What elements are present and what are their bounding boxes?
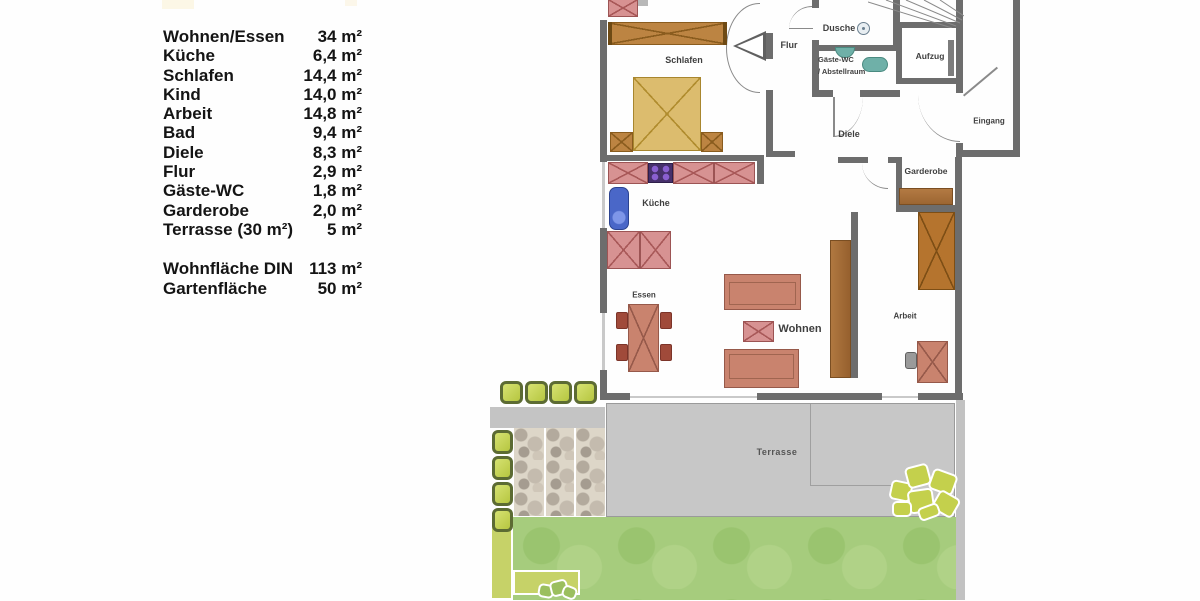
legend-row: Wohnen/Essen34 m² <box>163 27 362 46</box>
wall <box>851 212 858 378</box>
wall <box>766 151 795 157</box>
office-chair <box>905 352 917 369</box>
shower-icon <box>857 22 870 35</box>
legend-value: 50 m² <box>318 279 362 298</box>
legend-label: Bad <box>163 123 195 142</box>
wall <box>757 155 764 184</box>
legend-row: Bad9,4 m² <box>163 123 362 142</box>
kitchen-counter <box>608 162 648 184</box>
wardrobe-schlafen <box>608 22 727 45</box>
floorplan-page: { "legend": { "rows": [ {"label":"Wohnen… <box>0 0 1200 600</box>
toilet <box>862 57 888 72</box>
sofa <box>724 274 801 310</box>
terrace-edge-band <box>490 407 605 428</box>
dining-chair <box>616 312 628 329</box>
room-label-eingang: Eingang <box>973 117 1005 126</box>
nightstand <box>610 132 633 152</box>
dining-table <box>628 304 659 372</box>
wall <box>1013 0 1020 157</box>
cutoff-furniture <box>608 0 638 17</box>
legend-row: Flur2,9 m² <box>163 162 362 181</box>
legend-row: Kind14,0 m² <box>163 85 362 104</box>
legend-value: 14,8 m² <box>303 104 362 123</box>
door-leaf-schlafen-inner <box>737 35 763 57</box>
pebble-paving <box>546 428 574 516</box>
tall-wardrobe <box>918 212 955 290</box>
planter-box <box>549 381 572 404</box>
legend-value: 9,4 m² <box>313 123 362 142</box>
room-label-arbeit: Arbeit <box>893 312 916 321</box>
legend-row: Gäste-WC1,8 m² <box>163 181 362 200</box>
planter-box <box>492 456 513 480</box>
door-arc-entry <box>918 95 960 142</box>
legend-label: Diele <box>163 143 204 162</box>
legend-value: 2,9 m² <box>313 162 362 181</box>
nightstand <box>701 132 723 152</box>
legend-label: Flur <box>163 162 195 181</box>
room-label-diele: Diele <box>838 129 860 139</box>
wall <box>607 155 757 161</box>
wardrobe-endcap <box>608 22 612 45</box>
legend-value: 34 m² <box>318 27 362 46</box>
window-line <box>602 162 605 228</box>
legend-summary-row: Wohnfläche DIN113 m² <box>163 259 362 278</box>
sofa-cushion-line <box>729 354 794 379</box>
bush-leaf <box>560 584 579 601</box>
legend-label: Terrasse (30 m²) <box>163 220 293 239</box>
planter-box <box>500 381 523 404</box>
wall <box>812 90 833 97</box>
legend-label: Garderobe <box>163 201 249 220</box>
kitchen-cabinet <box>607 231 640 269</box>
legend-value: 2,0 m² <box>313 201 362 220</box>
kitchen-counter <box>673 162 714 184</box>
planter-box <box>492 482 513 506</box>
wall <box>757 393 882 400</box>
wall <box>962 150 1020 157</box>
garden-bush <box>890 463 962 521</box>
wall <box>600 20 607 162</box>
garderobe-cabinet <box>899 188 953 205</box>
kitchen-sink <box>609 187 629 230</box>
sofa <box>724 349 799 388</box>
shelf-wall-unit <box>830 240 851 378</box>
scan-artifact <box>162 0 194 9</box>
pebble-paving <box>576 428 605 516</box>
wall <box>896 205 955 212</box>
legend-label: Schlafen <box>163 66 234 85</box>
dining-chair <box>660 312 672 329</box>
wall <box>600 228 607 313</box>
desk <box>917 341 948 383</box>
legend-label: Arbeit <box>163 104 212 123</box>
planter-box <box>492 430 513 454</box>
legend-row: Arbeit14,8 m² <box>163 104 362 123</box>
window-line <box>602 313 605 370</box>
dining-chair <box>660 344 672 361</box>
legend-label: Gartenfläche <box>163 279 267 298</box>
room-label-essen: Essen <box>632 291 656 300</box>
legend-row: Garderobe2,0 m² <box>163 201 362 220</box>
legend-value: 14,0 m² <box>303 85 362 104</box>
cutoff-furniture-gray <box>638 0 648 6</box>
stairs-lines <box>868 0 964 28</box>
kitchen-cabinet <box>640 231 671 269</box>
legend-label: Küche <box>163 46 215 65</box>
door-leaf-dusche <box>789 28 813 29</box>
legend-summary-row: Gartenfläche50 m² <box>163 279 362 298</box>
room-label-kueche: Küche <box>642 198 670 208</box>
area-legend: Wohnen/Essen34 m² Küche6,4 m² Schlafen14… <box>163 27 362 298</box>
legend-row: Diele8,3 m² <box>163 143 362 162</box>
legend-value: 6,4 m² <box>313 46 362 65</box>
wall <box>766 33 773 59</box>
dining-chair <box>616 344 628 361</box>
room-label-aufzug: Aufzug <box>916 51 945 61</box>
wall <box>860 90 900 97</box>
door-arc-wohnbereich <box>862 163 888 189</box>
legend-label: Wohnen/Essen <box>163 27 285 46</box>
door-leaf-entry <box>963 67 998 96</box>
door-arc-dusche <box>789 6 812 29</box>
terrace-door-glass <box>630 396 757 398</box>
legend-value: 8,3 m² <box>313 143 362 162</box>
room-label-schlafen: Schlafen <box>665 55 703 65</box>
legend-label: Gäste-WC <box>163 181 244 200</box>
room-label-flur: Flur <box>781 40 798 50</box>
room-label-gaeste-wc: Gäste-WC / Abstellraum <box>818 54 865 78</box>
scan-artifact <box>345 0 357 6</box>
door-leaf-gaeste-wc <box>833 97 835 137</box>
wall <box>819 45 900 51</box>
room-label-garderobe: Garderobe <box>905 166 948 176</box>
coffee-table <box>743 321 774 342</box>
bed <box>633 77 701 151</box>
legend-row: Küche6,4 m² <box>163 46 362 65</box>
pebble-paving <box>514 428 544 516</box>
sofa-cushion-line <box>729 282 796 305</box>
room-label-gaeste-wc-line2: / Abstellraum <box>818 66 865 78</box>
stove <box>648 163 673 183</box>
planter-box <box>574 381 597 404</box>
legend-value: 1,8 m² <box>313 181 362 200</box>
hedge-strip <box>490 520 513 600</box>
bush-leaf <box>892 501 912 517</box>
garden-bush-small <box>538 580 578 600</box>
shower-icon-dot <box>862 27 865 30</box>
wardrobe-endcap <box>723 22 727 45</box>
kitchen-counter <box>714 162 755 184</box>
terrace-joint-line <box>810 404 811 486</box>
legend-label: Kind <box>163 85 201 104</box>
room-label-dusche: Dusche <box>823 23 856 33</box>
room-label-terrasse: Terrasse <box>757 447 798 457</box>
terrace-door-glass <box>882 396 918 398</box>
wall <box>766 90 773 157</box>
wall <box>955 157 962 400</box>
legend-label: Wohnfläche DIN <box>163 259 293 278</box>
planter-box <box>492 508 513 532</box>
legend-value: 14,4 m² <box>303 66 362 85</box>
room-label-gaeste-wc-line1: Gäste-WC <box>818 54 865 66</box>
room-label-wohnen: Wohnen <box>778 323 821 335</box>
planter-box <box>525 381 548 404</box>
elevator-cab-mark <box>948 40 954 76</box>
legend-spacer <box>163 239 362 259</box>
legend-row: Terrasse (30 m²)5 m² <box>163 220 362 239</box>
wall <box>600 393 630 400</box>
wall <box>812 0 819 8</box>
terrace-joint-line <box>810 485 897 486</box>
legend-value: 113 m² <box>309 259 362 278</box>
legend-value: 5 m² <box>327 220 362 239</box>
legend-row: Schlafen14,4 m² <box>163 66 362 85</box>
